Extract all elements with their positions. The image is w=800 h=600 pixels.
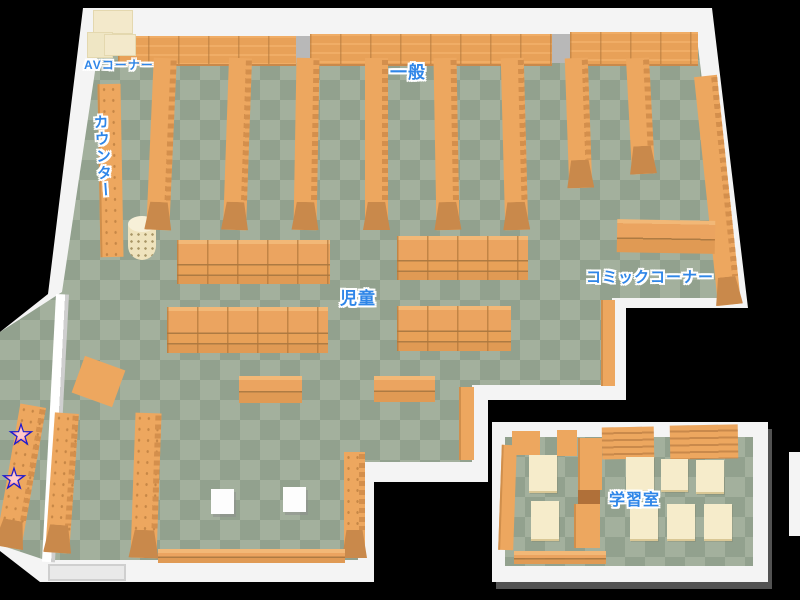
area-label-general[interactable]: 一般 [390, 58, 426, 83]
study-table [529, 455, 557, 493]
bookshelf-row [130, 413, 161, 559]
bookshelf-row [365, 58, 388, 230]
children-shelf [397, 306, 511, 351]
reading-bench [374, 376, 435, 402]
study-shelf [512, 431, 540, 455]
wall-fragment [789, 452, 800, 536]
library-floor-map: AVコーナー 一般 カウンター 児童 コミックコーナー 学習室 [0, 0, 800, 600]
children-shelf [397, 236, 528, 280]
area-label-comic-corner[interactable]: コミックコーナー [586, 266, 714, 287]
study-table [696, 460, 724, 494]
area-label-av-corner[interactable]: AVコーナー [84, 56, 154, 73]
study-table [667, 504, 695, 541]
av-shelf [104, 34, 136, 56]
entrance-door[interactable] [48, 564, 126, 581]
children-shelf [167, 307, 328, 353]
white-table [283, 487, 306, 512]
low-shelf [514, 551, 606, 564]
study-table [661, 459, 688, 492]
area-label-children[interactable]: 児童 [340, 284, 376, 309]
reading-bench [239, 376, 302, 403]
bookshelf-row [294, 58, 320, 230]
bookshelf-row [501, 58, 528, 231]
wall-shelf-strip [459, 387, 474, 460]
divider-shelf-gap [578, 490, 600, 504]
area-label-study-room[interactable]: 学習室 [609, 486, 660, 510]
white-table [211, 489, 234, 514]
magazine-rack [670, 424, 739, 459]
children-shelf [177, 240, 330, 284]
low-shelf [158, 549, 345, 563]
bookshelf-row [565, 58, 593, 189]
divider-shelf [574, 504, 600, 548]
study-table [531, 501, 559, 541]
divider-shelf [578, 438, 602, 490]
bookshelf-row [344, 452, 365, 558]
bookshelf-row [434, 58, 460, 230]
av-shelf [93, 10, 133, 34]
comic-shelf [617, 219, 716, 254]
study-shelf [557, 430, 577, 456]
magazine-rack [602, 427, 655, 460]
wall-shelf-strip [601, 300, 615, 386]
study-table [704, 504, 732, 541]
